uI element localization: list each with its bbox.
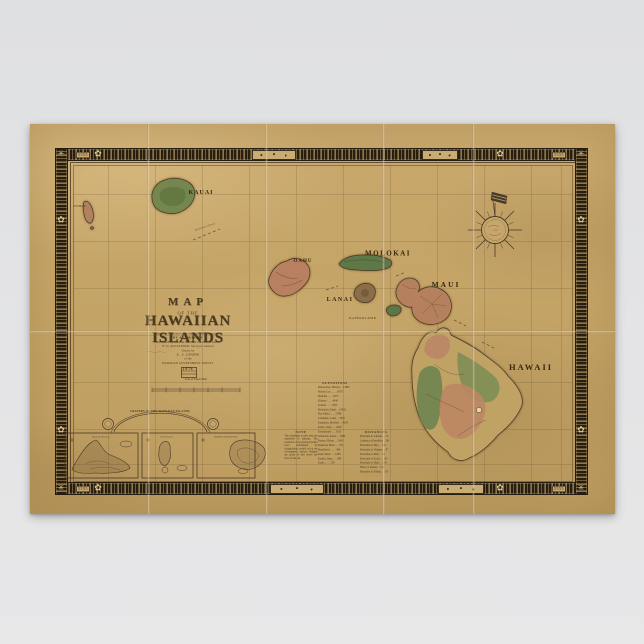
- island-label-maui: MAUI: [411, 281, 481, 289]
- table-row: Honolulu to Niihau . . 135: [360, 470, 392, 474]
- fold-crease: [147, 124, 150, 514]
- inset-arch: [103, 412, 219, 433]
- table-body: Mauna Kea, Hawaii . . 13805Mauna Loa . .…: [318, 386, 352, 466]
- inset-caption: KILAUEA: [157, 436, 177, 439]
- scale-caption: Scale of Statute Miles: [169, 378, 223, 381]
- inset-caption: MOKUAWEOWEO: [214, 436, 238, 439]
- elevations-table: ELEVATIONS Mauna Kea, Hawaii . . 13805Ma…: [318, 381, 352, 466]
- note-body: The soundings on this map are expressed …: [285, 435, 318, 461]
- compass-rose: [468, 192, 522, 257]
- island-label-kahoolawe: KAHOOLAWE: [346, 316, 380, 321]
- imprint-stamp: [181, 367, 197, 378]
- inset-arch-title: CRATERS OF THE HAWAIIAN ISLANDS: [130, 410, 190, 413]
- island-label-hawaii: HAWAII: [489, 363, 574, 372]
- fold-crease: [30, 330, 615, 333]
- map-poster: ✳ ✳ ✳ ✳ ✿ ✿ ✿ ✿ ✿ ✿ ✿ ✿ 5555 5555 5555 5…: [30, 124, 615, 514]
- island-label-molokai: MOLOKAI: [353, 250, 423, 258]
- distances-table: DISTANCES Honolulu to Lahaina . . 72Laha…: [360, 430, 392, 475]
- inset-caption: HALEAKALA: [86, 436, 116, 439]
- fold-crease: [472, 124, 475, 514]
- map-imprint: Compiled from the latest explorations an…: [143, 332, 233, 371]
- island-oahu: [269, 259, 310, 297]
- table-body: Honolulu to Lahaina . . 72Lahaina to Kaw…: [360, 435, 392, 475]
- islet-kaula: [91, 227, 94, 230]
- island-kahoolawe: [386, 305, 401, 316]
- fold-crease: [265, 124, 268, 514]
- imprint-line: HAWAIIAN GOVERNMENT SURVEY: [143, 361, 233, 365]
- fold-crease: [382, 124, 385, 514]
- island-label-niihau: NIIHAU: [65, 205, 95, 209]
- note-block: NOTE The soundings on this map are expre…: [285, 430, 318, 460]
- poster-product-photo: ✳ ✳ ✳ ✳ ✿ ✿ ✿ ✿ ✿ ✿ ✿ ✿ 5555 5555 5555 5…: [0, 0, 644, 644]
- island-label-kauai: KAUAI: [171, 189, 231, 196]
- island-label-oahu: OAHU: [278, 258, 328, 264]
- scale-bar: [152, 388, 240, 393]
- crater-mokuaweoweo: [476, 407, 481, 412]
- table-row: Kaula . . . . 550: [318, 461, 352, 465]
- island-label-lanai: LANAI: [310, 296, 370, 303]
- inset-panels: [65, 433, 265, 478]
- map-title-word: MAP: [158, 296, 218, 308]
